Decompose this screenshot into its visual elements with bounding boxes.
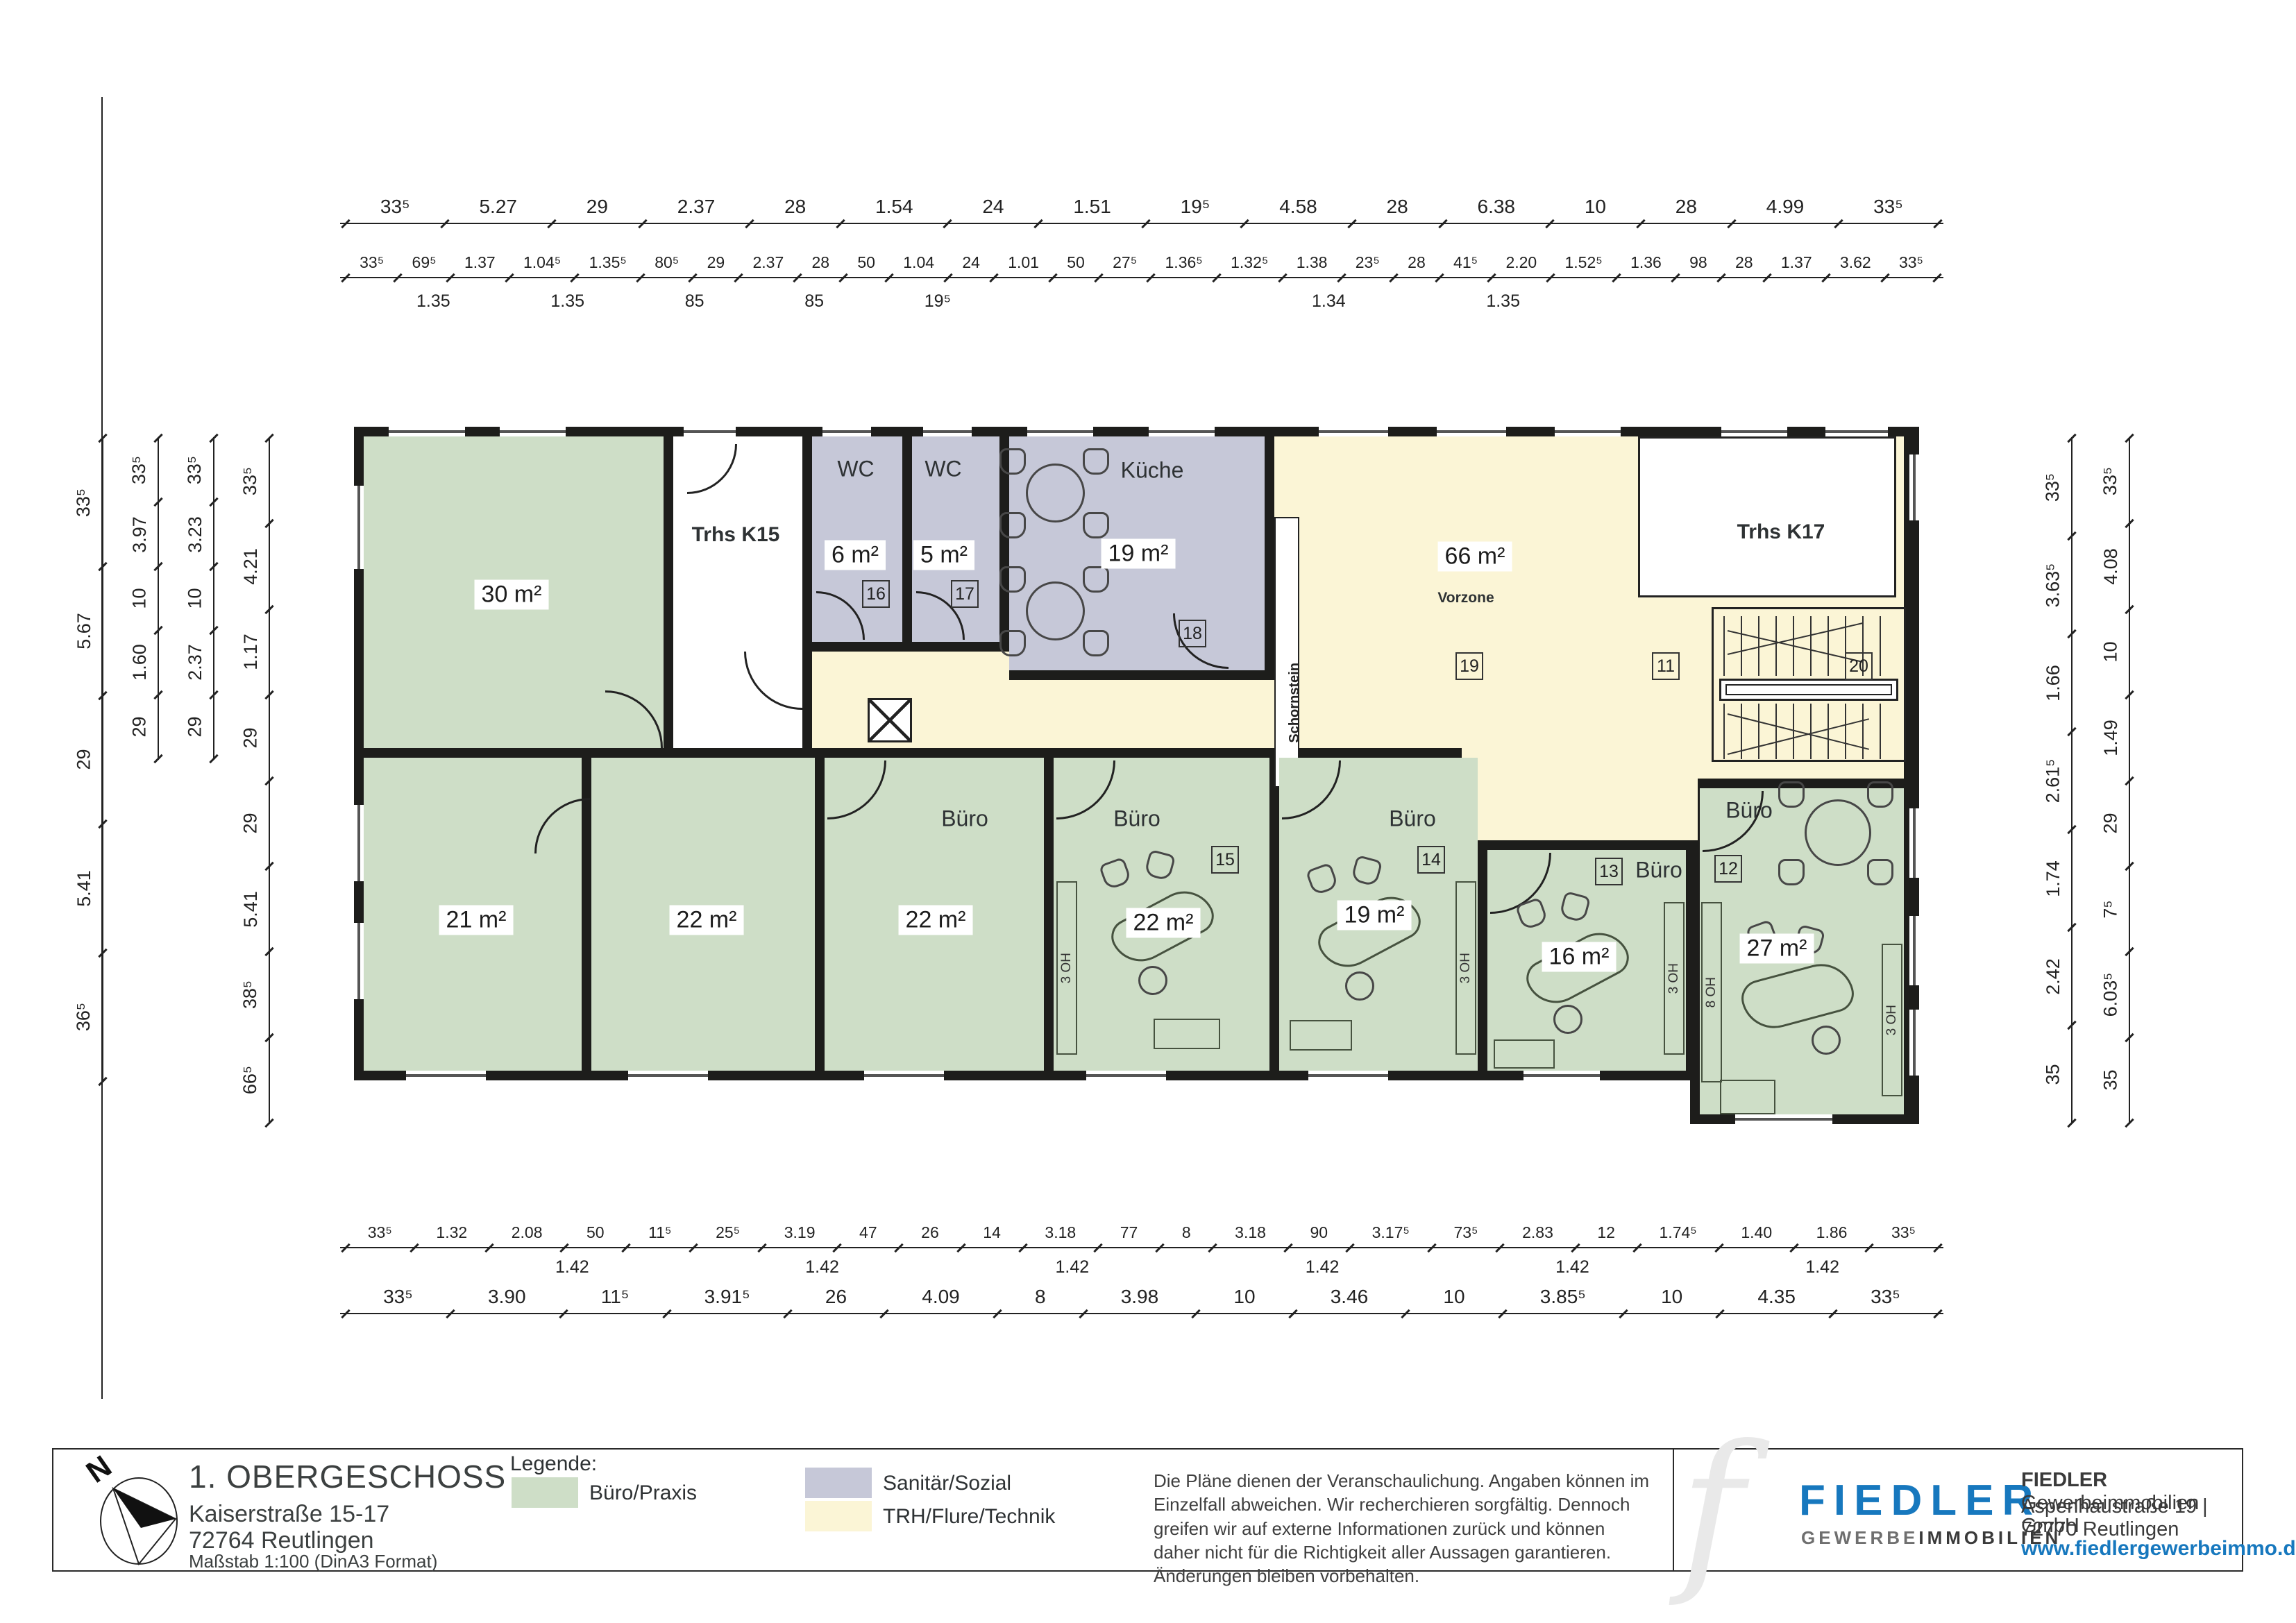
chair [1867, 859, 1893, 885]
dim-tick [1571, 1243, 1580, 1252]
dim-label: 28 [1408, 255, 1426, 271]
dim-tick [2067, 434, 2076, 443]
dim-tick [622, 1243, 631, 1252]
dim-tick [153, 626, 162, 635]
dim-tick [993, 1309, 1002, 1318]
dim-label: 4.21 [240, 548, 262, 585]
logo-block: f FIEDLER GEWERBEIMMOBILIEN FIEDLER Gewe… [1673, 1450, 2245, 1570]
dim-label: 1.42 [805, 1257, 839, 1277]
kitchen-table [1026, 581, 1085, 640]
dim-tick [153, 690, 162, 699]
cabinet-label: 3 OH [1884, 1005, 1900, 1035]
room-b6-name: Büro [1635, 858, 1682, 883]
dim-chain-left-d: 33⁵4.211.1729295.4138⁵66⁵ [254, 437, 285, 1124]
cabinet-8oh: 8 OH [1701, 902, 1722, 1082]
dim-tick [2067, 629, 2076, 638]
dim-tick [793, 273, 802, 282]
dim-tick [1208, 1243, 1217, 1252]
dim-label: 3.46 [1331, 1287, 1369, 1307]
dim-tick [1048, 273, 1057, 282]
dim-tick [1716, 273, 1725, 282]
dim-chain-top-outer: 33⁵5.27292.37281.54241.5119⁵4.58286.3810… [340, 197, 1943, 229]
cabinet-label: 8 OH [1704, 977, 1719, 1008]
window [923, 427, 972, 436]
dim-tick [1288, 1309, 1297, 1318]
dim-label: 5.67 [74, 613, 95, 649]
dim-tick [1141, 219, 1150, 228]
dim-tick [2125, 1119, 2134, 1128]
dim-label: 33⁵ [360, 255, 384, 271]
dim-tick [560, 1243, 569, 1252]
dim-tick [1716, 1309, 1725, 1318]
room-wc1-name: WC [837, 457, 874, 482]
dim-chain-bottom-inner: 33⁵1.322.085011⁵25⁵3.194726143.187783.18… [340, 1221, 1943, 1253]
dim-label: 1.36 [1630, 255, 1662, 271]
dim-tick [1401, 1309, 1410, 1318]
dim-label: 1.52⁵ [1564, 255, 1602, 271]
cabinet-3oh: 3 OH [1056, 881, 1077, 1055]
dim-tick [1545, 219, 1554, 228]
window [1027, 427, 1093, 436]
dim-tick [884, 273, 893, 282]
dim-tick [1834, 219, 1843, 228]
dim-label: 85 [804, 291, 824, 312]
room-b6-area: 16 m² [1542, 942, 1617, 972]
dim-label: 25⁵ [716, 1225, 740, 1241]
dim-tick [98, 948, 107, 957]
room-b5-name: Büro [1389, 806, 1436, 832]
dim-tick [209, 498, 218, 507]
window [1319, 427, 1388, 436]
dim-label: 1.37 [464, 255, 496, 271]
dim-label: 10 [1233, 1287, 1255, 1307]
dim-label: 4.99 [1766, 197, 1805, 216]
dim-label: 29 [128, 716, 150, 737]
dim-label: 27⁵ [1113, 255, 1137, 271]
dim-label: 2.37 [752, 255, 784, 271]
room-kueche-name: Küche [1121, 458, 1184, 484]
room-number-text: 13 [1599, 862, 1619, 882]
dim-label: 1.49 [2100, 720, 2122, 756]
dim-label: 35 [2042, 1064, 2063, 1085]
dim-tick [1632, 1243, 1641, 1252]
dim-label: 1.04⁵ [523, 255, 561, 271]
dim-label: 33⁵ [1873, 197, 1903, 216]
dim-tick [783, 1309, 792, 1318]
scale-note: Maßstab 1:100 (DinA3 Format) [189, 1551, 437, 1572]
dim-label: 19⁵ [1181, 197, 1210, 216]
chair [1083, 630, 1109, 656]
window [1909, 1010, 1919, 1076]
dim-tick [264, 776, 273, 785]
kitchen-table [1026, 464, 1085, 522]
dim-chain-left-b: 33⁵3.97101.6029 [143, 437, 174, 760]
dim-label: 3.62 [1840, 255, 1871, 271]
task-chair [1138, 966, 1167, 995]
dim-tick [1034, 219, 1043, 228]
cabinet-label: 3 OH [1458, 953, 1474, 983]
dim-tick [1435, 273, 1444, 282]
dim-label: 10 [1443, 1287, 1464, 1307]
dim-tick [264, 947, 273, 956]
dim-tick [1278, 273, 1287, 282]
window [1909, 808, 1919, 878]
dim-tick [341, 1243, 350, 1252]
dim-label: 73⁵ [1453, 1225, 1478, 1241]
dim-label: 1.35 [550, 291, 584, 312]
dim-tick [1147, 273, 1156, 282]
cabinet-label: 3 OH [1666, 963, 1682, 994]
dim-tick [209, 562, 218, 571]
dim-label: 29 [586, 197, 608, 216]
legend-label-buero: Büro/Praxis [589, 1481, 697, 1505]
dim-label: 98 [1689, 255, 1707, 271]
dim-tick [209, 754, 218, 763]
dim-label: 8 [1182, 1225, 1191, 1241]
dim-tick [2067, 532, 2076, 541]
dim-label: 77 [1120, 1225, 1138, 1241]
dim-tick [410, 1243, 419, 1252]
dim-label: 33⁵ [380, 197, 410, 216]
dim-tick [662, 1309, 671, 1318]
dim-tick [1093, 1243, 1102, 1252]
room-b5-area: 19 m² [1337, 901, 1412, 931]
dim-label: 14 [983, 1225, 1001, 1241]
dim-tick [1933, 1243, 1942, 1252]
room-number-text: 15 [1215, 850, 1235, 870]
dim-tick [98, 434, 107, 443]
room-number-text: 16 [866, 584, 886, 604]
dim-label: 33⁵ [239, 467, 261, 495]
dim-label: 33⁵ [73, 488, 94, 517]
window [1909, 454, 1919, 520]
dim-tick [446, 1309, 455, 1318]
dim-label: 3.17⁵ [1372, 1225, 1410, 1241]
dim-label: 3.85⁵ [1540, 1287, 1586, 1307]
dim-sub-top-right: 1.341.35 [1312, 291, 1520, 312]
dim-label: 28 [1735, 255, 1753, 271]
window [389, 427, 465, 436]
dim-tick [440, 219, 449, 228]
dim-sub-bottom: 1.421.421.421.421.421.42 [555, 1257, 1839, 1277]
dim-tick [264, 1033, 273, 1042]
dim-label: 5.41 [240, 891, 262, 928]
dim-label: 26 [825, 1287, 847, 1307]
chair [999, 448, 1026, 475]
dim-tick [264, 690, 273, 699]
room-number-15: 15 [1211, 846, 1239, 874]
dim-chain-left-c: 33⁵3.23102.3729 [199, 437, 229, 760]
room-number-text: 11 [1657, 656, 1675, 677]
legend-label-sanitaer: Sanitär/Sozial [883, 1472, 1011, 1495]
shaft-x-box [868, 698, 912, 742]
dim-tick [1337, 273, 1346, 282]
dim-tick [2125, 947, 2134, 956]
dim-chain-right-outer: 33⁵4.08101.49297⁵6.03⁵35 [2114, 437, 2145, 1124]
dim-tick [1671, 273, 1680, 282]
dim-label: 33⁵ [2100, 467, 2121, 495]
sideboard [1494, 1039, 1555, 1069]
dim-label: 29 [707, 255, 725, 271]
dim-label: 47 [859, 1225, 877, 1241]
legend-label-trh: TRH/Flure/Technik [883, 1505, 1055, 1529]
logo-f-watermark: f [1680, 1408, 1744, 1610]
cabinet-label: 3 OH [1059, 953, 1074, 983]
dim-tick [2125, 862, 2134, 871]
dim-tick [1714, 1243, 1723, 1252]
dim-label: 3.63⁵ [2043, 563, 2064, 607]
dim-label: 1.32 [436, 1225, 467, 1241]
dim-label: 1.34 [1312, 291, 1346, 312]
window [864, 1071, 944, 1080]
dim-label: 1.35 [1486, 291, 1520, 312]
dim-tick [1880, 273, 1889, 282]
window [1308, 1071, 1388, 1080]
dim-label: 80⁵ [655, 255, 679, 271]
dim-label: 12 [1597, 1225, 1615, 1241]
chair [1867, 781, 1893, 808]
window [1721, 427, 1787, 436]
task-chair [1553, 1005, 1582, 1034]
dim-label: 33⁵ [1899, 255, 1923, 271]
dim-tick [1546, 273, 1555, 282]
room-b7-name: Büro [1725, 798, 1773, 824]
dim-label: 1.66 [2043, 665, 2064, 702]
room-wc2-area: 5 m² [913, 541, 974, 570]
dim-label: 2.37 [185, 645, 206, 681]
room-number-text: 17 [955, 584, 974, 604]
dim-label: 36⁵ [73, 1003, 94, 1031]
dim-tick [209, 434, 218, 443]
dim-label: 4.58 [1279, 197, 1317, 216]
room-number-text: 12 [1719, 859, 1738, 879]
cabinet-3oh: 3 OH [1455, 881, 1476, 1055]
chair [1083, 448, 1109, 475]
dim-label: 10 [1661, 1287, 1682, 1307]
dim-tick [394, 273, 403, 282]
dim-label: 1.35⁵ [589, 255, 627, 271]
dim-label: 2.83 [1522, 1225, 1553, 1241]
dim-tick [757, 1243, 766, 1252]
dim-tick [559, 1309, 568, 1318]
dim-label: 50 [586, 1225, 605, 1241]
dim-sub-top-left: 1.351.35858519⁵ [416, 291, 951, 312]
dim-tick [2067, 923, 2076, 932]
dim-label: 85 [685, 291, 704, 312]
room-b3-name: Büro [941, 806, 988, 832]
dim-label: 29 [239, 727, 261, 748]
dim-tick [1789, 1243, 1798, 1252]
dim-label: 50 [1067, 255, 1085, 271]
dim-label: 1.60 [129, 645, 151, 681]
dim-tick [2125, 776, 2134, 785]
chair [1778, 859, 1805, 885]
schornstein-label: Schornstein [1287, 663, 1303, 743]
dim-tick [2067, 1021, 2076, 1030]
dim-tick [2125, 605, 2134, 614]
dim-label: 11⁵ [601, 1287, 630, 1307]
dim-tick [341, 1309, 350, 1318]
dim-tick [1821, 273, 1830, 282]
dim-tick [264, 519, 273, 528]
dim-tick [341, 273, 350, 282]
dim-label: 1.04 [903, 255, 934, 271]
stair-flight-down [1723, 704, 1896, 759]
dim-tick [989, 273, 998, 282]
sideboard [1154, 1019, 1220, 1049]
company-name-bold: FIEDLER [2021, 1469, 2107, 1491]
chair [1778, 781, 1805, 808]
dim-label: 3.97 [129, 516, 151, 553]
room-number-18: 18 [1179, 620, 1206, 647]
window [354, 923, 364, 999]
dim-label: 8 [1035, 1287, 1046, 1307]
dim-label: 28 [812, 255, 830, 271]
window [354, 486, 364, 569]
legend-title: Legende: [510, 1452, 597, 1476]
dim-tick [1762, 273, 1771, 282]
dim-label: 3.23 [185, 516, 206, 553]
room-number-14: 14 [1417, 846, 1445, 874]
task-chair [1812, 1026, 1841, 1055]
dim-label: 24 [982, 197, 1004, 216]
dim-label: 33⁵ [1871, 1287, 1900, 1307]
dim-tick [956, 1243, 965, 1252]
room-number-11: 11 [1652, 652, 1680, 680]
dim-label: 26 [921, 1225, 939, 1241]
dim-tick [153, 434, 162, 443]
chair [1083, 566, 1109, 593]
room-b4-area: 22 m² [1126, 908, 1201, 938]
room-number-19: 19 [1455, 652, 1483, 680]
dim-tick [1389, 273, 1398, 282]
chair [999, 566, 1026, 593]
dim-label: 35 [2100, 1070, 2121, 1091]
dim-tick [98, 819, 107, 829]
dim-label: 3.18 [1045, 1225, 1076, 1241]
dim-tick [1933, 219, 1942, 228]
dim-label: 24 [962, 255, 980, 271]
room-wc1-area: 6 m² [825, 541, 886, 570]
dim-chain-left-a: 33⁵5.67295.4136⁵ [87, 437, 118, 1082]
dim-tick [689, 273, 698, 282]
room-number-text: 20 [1849, 656, 1868, 677]
dim-tick [2067, 1119, 2076, 1128]
dim-label: 1.42 [1805, 1257, 1839, 1277]
dim-label: 1.42 [1056, 1257, 1090, 1277]
page-title: 1. OBERGESCHOSS [189, 1458, 506, 1495]
window [1086, 1071, 1166, 1080]
corridor-fill-right2 [1462, 779, 1698, 840]
address-line1: Kaiserstraße 15-17 [189, 1501, 389, 1528]
chair [1083, 512, 1109, 538]
dim-label: 28 [1675, 197, 1697, 216]
dim-tick [1345, 1243, 1354, 1252]
dim-label: 6.03⁵ [2100, 973, 2122, 1017]
dim-tick [209, 626, 218, 635]
dim-label: 41⁵ [1453, 255, 1478, 271]
dim-tick [153, 562, 162, 571]
dim-label: 1.86 [1816, 1225, 1848, 1241]
sideboard [1290, 1020, 1352, 1051]
dim-label: 2.42 [2043, 958, 2064, 995]
dim-label: 5.41 [74, 870, 95, 907]
room-b1-area: 21 m² [439, 906, 514, 935]
dim-tick [209, 690, 218, 699]
dim-tick [1727, 219, 1736, 228]
dim-label: 4.35 [1757, 1287, 1796, 1307]
north-arrow: N [87, 1455, 184, 1566]
dim-label: 1.37 [1781, 255, 1812, 271]
room-wc2-name: WC [925, 457, 961, 482]
dim-label: 2.61⁵ [2043, 758, 2064, 803]
room-trhs-k17-fill [1638, 436, 1896, 597]
room-vorzone-name: Vorzone [1437, 590, 1494, 606]
dim-tick [2125, 434, 2134, 443]
dim-label: 1.40 [1741, 1225, 1772, 1241]
window [1555, 427, 1621, 436]
room-number-16: 16 [862, 580, 890, 608]
dim-tick [264, 434, 273, 443]
corridor-fill-b [1009, 680, 1274, 748]
dim-tick [636, 273, 645, 282]
dim-label: 1.35 [416, 291, 450, 312]
dim-label: 2.20 [1505, 255, 1537, 271]
dim-label: 33⁵ [2042, 473, 2063, 501]
dim-tick [1079, 1309, 1088, 1318]
dim-tick [2067, 825, 2076, 834]
room-kueche-area: 19 m² [1101, 539, 1176, 569]
dim-tick [1283, 1243, 1292, 1252]
dim-tick [1636, 219, 1645, 228]
window [822, 427, 871, 436]
brand-wordmark: FIEDLER [1799, 1476, 2041, 1525]
dim-label: 33⁵ [368, 1225, 392, 1241]
company-address: Aspenhaustraße 19 | 72770 Reutlingen [2021, 1495, 2245, 1541]
disclaimer-text: Die Pläne dienen der Veranschaulichung. … [1154, 1469, 1653, 1588]
dim-label: 3.90 [488, 1287, 526, 1307]
dim-label: 1.38 [1297, 255, 1328, 271]
dim-tick [879, 1309, 888, 1318]
dim-tick [745, 219, 754, 228]
dim-label: 3.19 [784, 1225, 816, 1241]
title-block: N 1. OBERGESCHOSS Kaiserstraße 15-17 727… [52, 1448, 2243, 1572]
room-number-text: 19 [1460, 656, 1479, 677]
room-b4-name: Büro [1113, 806, 1160, 832]
cabinet-3oh: 3 OH [1882, 944, 1902, 1096]
dim-label: 1.51 [1073, 197, 1111, 216]
window [684, 427, 736, 436]
dim-tick [1487, 273, 1496, 282]
dim-tick [1933, 273, 1942, 282]
dim-tick [1018, 1243, 1027, 1252]
dim-tick [1864, 1243, 1873, 1252]
dim-tick [1933, 1309, 1942, 1318]
dim-label: 11⁵ [648, 1225, 671, 1241]
dim-chain-right-inner: 33⁵3.63⁵1.662.61⁵1.742.4235 [2057, 437, 2087, 1124]
dim-label: 28 [1387, 197, 1408, 216]
dim-tick [1619, 1309, 1628, 1318]
dim-tick [98, 1077, 107, 1086]
dim-tick [2125, 1033, 2134, 1042]
dim-tick [895, 1243, 904, 1252]
dim-label: 3.98 [1121, 1287, 1159, 1307]
dim-label: 1.74 [2043, 860, 2064, 897]
dim-label: 3.91⁵ [704, 1287, 750, 1307]
dim-tick [1828, 1309, 1837, 1318]
dim-tick [1212, 273, 1221, 282]
dim-label: 1.54 [875, 197, 913, 216]
